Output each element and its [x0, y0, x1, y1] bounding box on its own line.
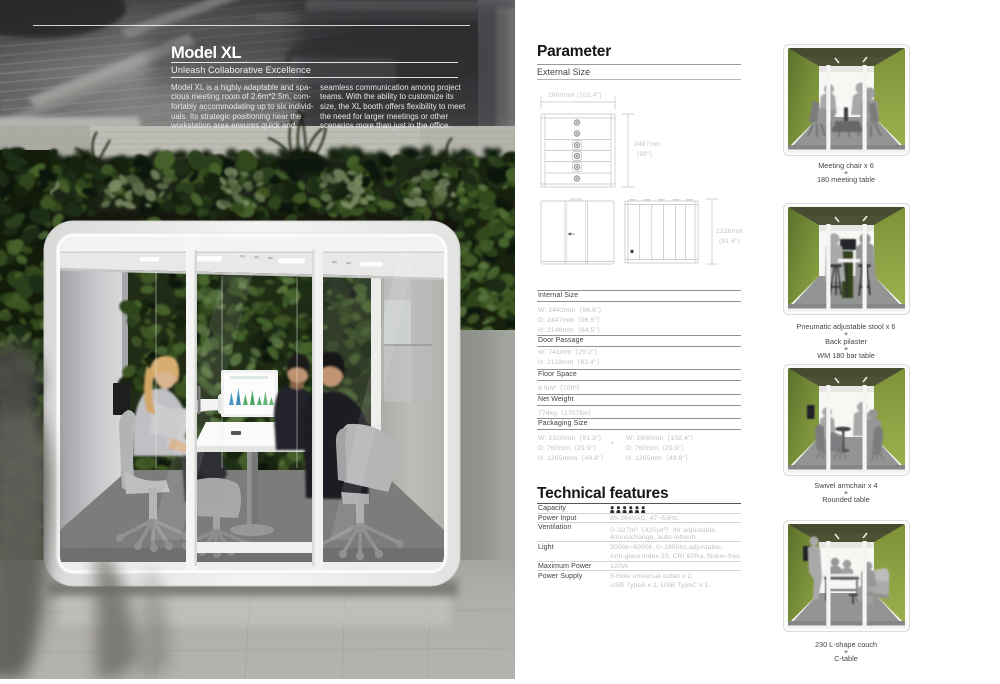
svg-text:(98"): (98") — [637, 151, 652, 158]
svg-text:2487mm: 2487mm — [634, 141, 661, 148]
svg-text:2600mm (102.4"): 2600mm (102.4") — [548, 92, 602, 99]
svg-text:2326mm: 2326mm — [716, 228, 743, 235]
svg-text:(91.6"): (91.6") — [719, 238, 740, 245]
